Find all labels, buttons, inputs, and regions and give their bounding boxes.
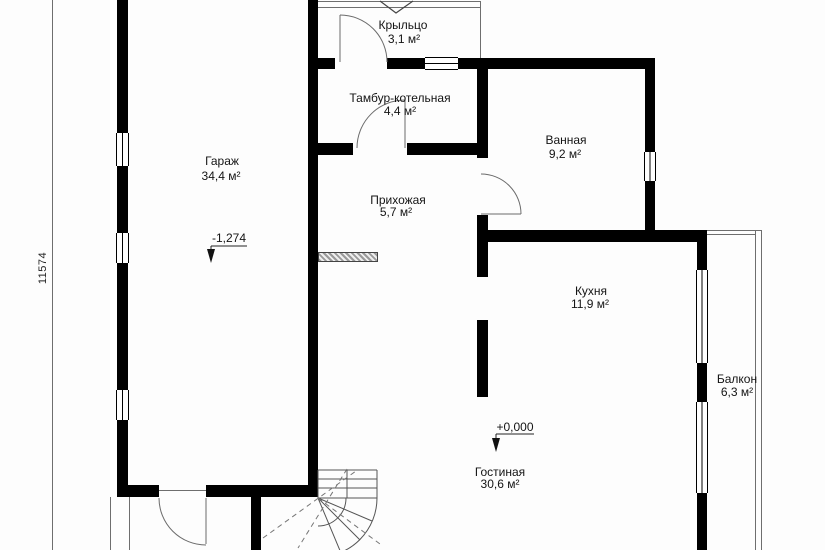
room-label-bathroom: Ванная (545, 133, 586, 147)
room-label-porch: Крыльцо (379, 18, 428, 32)
elevation-label-garage: -1,274 (212, 231, 246, 245)
elevation-mark-garage (207, 246, 247, 263)
room-label-kitchen: Кухня (575, 284, 607, 298)
room-area-porch: 3,1 м² (388, 32, 420, 46)
room-area-balcony: 6,3 м² (721, 385, 753, 399)
room-label-garage: Гараж (205, 154, 239, 168)
entrance-arrow-icon (380, 1, 413, 13)
room-area-kitchen: 11,9 м² (571, 297, 609, 311)
elevation-label-living: +0,000 (496, 420, 533, 434)
staircase-winder (318, 470, 377, 550)
room-label-balcony: Балкон (717, 372, 757, 386)
floor-plan-canvas: 11574 (0, 0, 825, 550)
plan-linework (0, 0, 825, 550)
room-area-hallway: 5,7 м² (380, 205, 412, 219)
room-area-vestibule: 4,4 м² (384, 104, 416, 118)
room-area-garage: 34,4 м² (202, 169, 241, 183)
elevation-mark-living (492, 434, 534, 452)
room-label-vestibule: Тамбур-котельная (349, 91, 450, 105)
room-area-bathroom: 9,2 м² (549, 147, 581, 161)
garage-door-arc (159, 498, 206, 545)
room-area-living: 30,6 м² (481, 477, 520, 491)
bathroom-door-arc (481, 174, 521, 214)
